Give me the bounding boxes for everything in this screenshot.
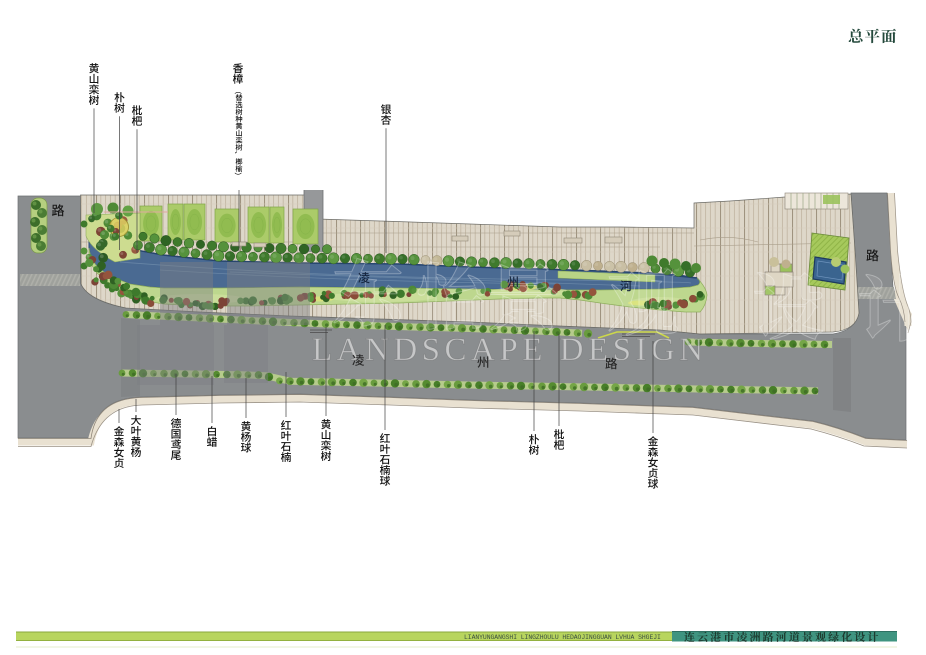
svg-text:LIANYUNGANGSHI LINGZHOULU HEDA: LIANYUNGANGSHI LINGZHOULU HEDAOJINGGUAN … bbox=[464, 634, 661, 641]
svg-text:LANDSCAPE DESIGN: LANDSCAPE DESIGN bbox=[312, 332, 708, 368]
